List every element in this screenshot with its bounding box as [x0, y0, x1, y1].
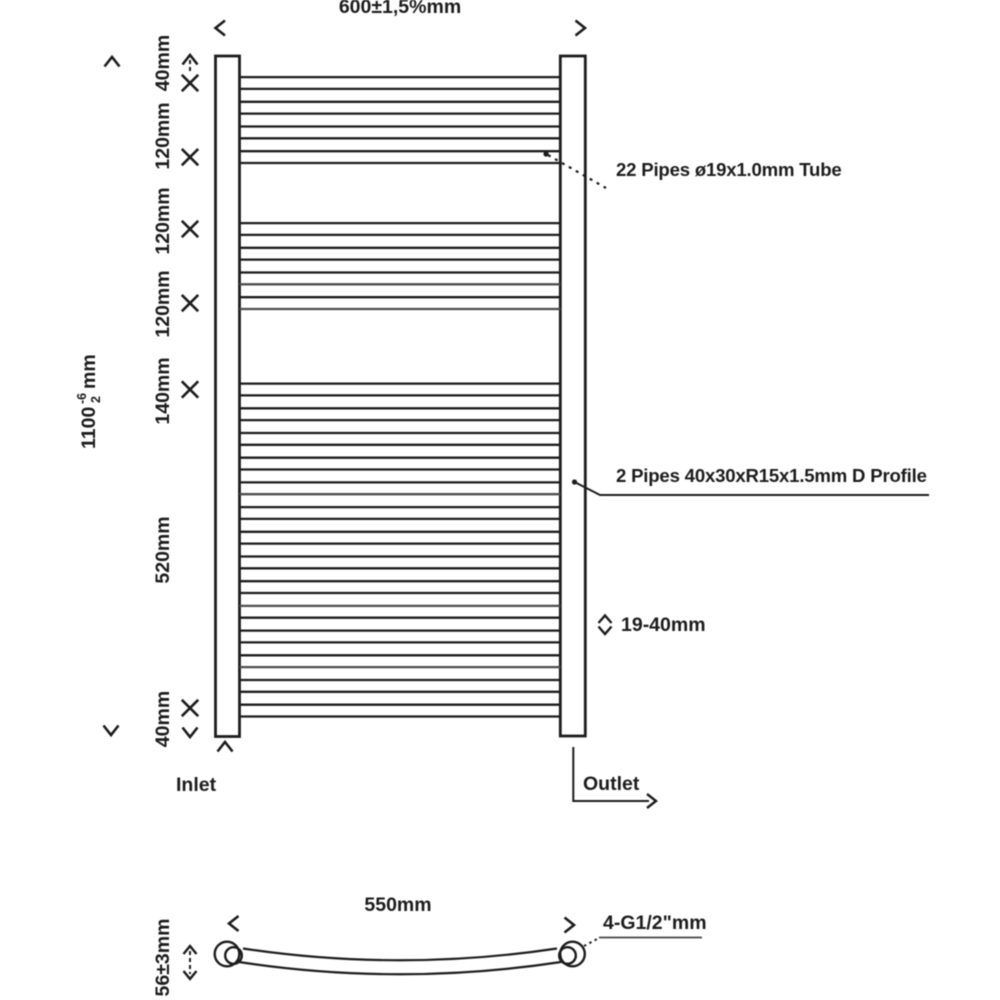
- svg-text:40mm: 40mm: [152, 35, 174, 91]
- svg-text:520mm: 520mm: [152, 516, 174, 583]
- svg-text:56±3mm: 56±3mm: [152, 919, 174, 997]
- svg-text:2: 2: [89, 396, 103, 403]
- svg-text:Inlet: Inlet: [176, 774, 217, 796]
- svg-text:600±1,5%mm: 600±1,5%mm: [339, 0, 461, 18]
- svg-text:22 Pipes ø19x1.0mm Tube: 22 Pipes ø19x1.0mm Tube: [616, 159, 842, 180]
- svg-text:40mm: 40mm: [152, 691, 174, 747]
- svg-text:mm: mm: [78, 354, 100, 389]
- svg-text:1100: 1100: [78, 407, 100, 449]
- svg-text:2 Pipes 40x30xR15x1.5mm D Prof: 2 Pipes 40x30xR15x1.5mm D Profile: [616, 465, 927, 486]
- svg-text:140mm: 140mm: [152, 357, 174, 424]
- svg-text:120mm: 120mm: [152, 187, 174, 254]
- svg-text:4-G1/2"mm: 4-G1/2"mm: [603, 912, 707, 934]
- svg-text:120mm: 120mm: [152, 102, 174, 169]
- svg-text:-6: -6: [75, 393, 89, 404]
- svg-text:550mm: 550mm: [364, 894, 431, 916]
- svg-text:Outlet: Outlet: [583, 773, 640, 795]
- svg-text:120mm: 120mm: [152, 270, 174, 337]
- svg-text:19-40mm: 19-40mm: [621, 614, 706, 636]
